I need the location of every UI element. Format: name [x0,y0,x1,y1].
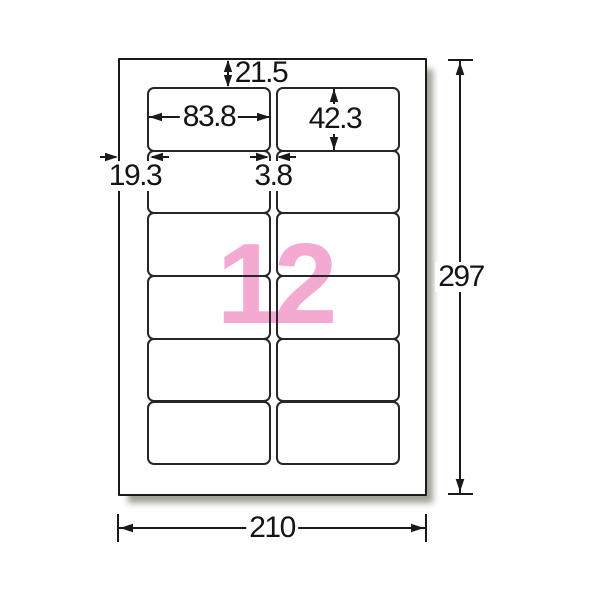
arrowhead-down [456,479,465,492]
label-cell [276,212,400,277]
dim-label-width: 83.8 [180,102,238,132]
arrowhead-left [120,524,133,533]
label-cell [276,275,400,340]
label-cell [147,275,271,340]
label-cell [276,338,400,403]
dim-top-margin: 21.5 [232,58,290,88]
label-cell [147,212,271,277]
dim-sheet-width: 210 [246,513,298,543]
dim-left-margin: 19.3 [106,161,164,191]
dim-sheet-height: 297 [435,262,487,292]
arrowhead-up [456,62,465,75]
label-sheet-diagram: 12 [0,0,600,600]
dim-column-gap: 3.8 [251,161,294,191]
label-cell [147,338,271,403]
arrowhead-right [411,524,424,533]
label-cell [147,401,271,466]
label-cell [276,401,400,466]
dim-label-height: 42.3 [306,104,364,134]
